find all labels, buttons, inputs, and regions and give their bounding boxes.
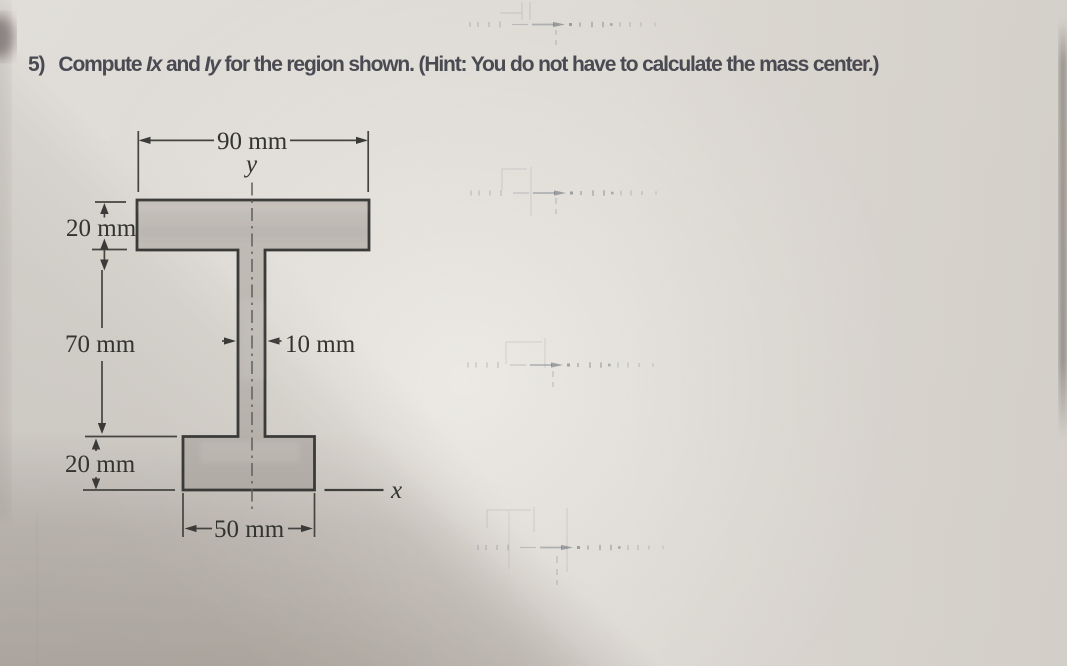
svg-text:10 mm: 10 mm	[285, 331, 356, 358]
svg-text:90 mm: 90 mm	[217, 128, 288, 155]
svg-text:20 mm: 20 mm	[66, 215, 137, 242]
svg-text:y: y	[243, 151, 258, 178]
svg-text:70 mm: 70 mm	[65, 331, 136, 358]
svg-text:20 mm: 20 mm	[65, 451, 136, 478]
svg-text:x: x	[390, 477, 402, 504]
svg-text:50 mm: 50 mm	[214, 516, 285, 543]
